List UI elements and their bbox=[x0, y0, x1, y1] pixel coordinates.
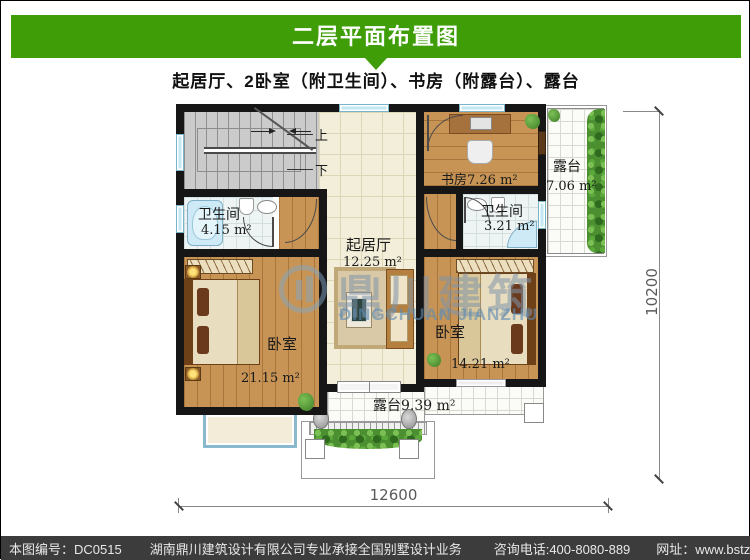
sink-left bbox=[257, 200, 277, 214]
window-left-bath bbox=[176, 205, 184, 233]
watermark-en-text: DINGCHUAN JIANZHU bbox=[339, 305, 538, 325]
bedroom-right-area: 14.21 m² bbox=[451, 357, 510, 372]
desk-chair bbox=[467, 140, 493, 164]
door-leaf-study bbox=[427, 115, 429, 151]
window-right-bath bbox=[538, 201, 546, 229]
watermark-logo-bar-2 bbox=[306, 276, 313, 302]
footer-company: 湖南鼎川建筑设计有限公司专业承接全国别墅设计业务 bbox=[150, 539, 462, 558]
lamp-left-bottom bbox=[187, 368, 199, 380]
bedroom-left-plant bbox=[298, 393, 314, 411]
stair-down-label: 下 bbox=[315, 160, 328, 179]
stair-arrow-left bbox=[251, 131, 271, 132]
dim-right-top-ext bbox=[623, 111, 660, 112]
footer-website: 网址：www.bstzcs.com bbox=[656, 539, 750, 558]
terrace-right-area: 7.06 m² bbox=[546, 179, 597, 194]
door-leaf-bath-left bbox=[272, 217, 274, 247]
wall-bath-right-bottom bbox=[416, 249, 546, 257]
bay-window bbox=[203, 412, 297, 448]
bed-right-pillow-2 bbox=[511, 324, 523, 354]
bed-left-headboard bbox=[185, 280, 193, 364]
bed-left-pillow-1 bbox=[197, 288, 209, 316]
bed-left-pillow-2 bbox=[197, 326, 209, 354]
floor-plan: 上 下 bbox=[1, 1, 750, 536]
terrace-bottom-label: 露台9.39 m² bbox=[373, 395, 456, 415]
footer-bar: 本图编号：DC0515 湖南鼎川建筑设计有限公司专业承接全国别墅设计业务 咨询电… bbox=[1, 536, 750, 560]
terrace-right-plant-corner bbox=[548, 109, 560, 122]
bath-left-area: 4.15 m² bbox=[201, 223, 252, 238]
bedroom-left-area: 21.15 m² bbox=[241, 371, 300, 386]
footer-drawing-no: 本图编号：DC0515 bbox=[9, 539, 122, 558]
bedroom-left-name: 卧室 bbox=[267, 333, 297, 354]
stair-down-leader bbox=[287, 169, 313, 170]
door-study-terrace bbox=[538, 131, 546, 155]
terrace-right-name: 露台 bbox=[553, 156, 581, 176]
stair-up-label: 上 bbox=[315, 125, 328, 144]
window-bedroom-right-bottom bbox=[456, 379, 506, 387]
bath-right-area: 3.21 m² bbox=[484, 219, 535, 234]
bath-right-name: 卫生间 bbox=[481, 201, 523, 221]
bath-left-name: 卫生间 bbox=[198, 204, 240, 224]
wall-bath-right-left bbox=[456, 194, 463, 257]
stair-up-leader bbox=[287, 134, 313, 135]
dim-height-value: 10200 bbox=[643, 260, 659, 324]
toilet-left bbox=[239, 198, 254, 215]
watermark: 鼎川建筑 DINGCHUAN JIANZHU bbox=[271, 261, 501, 323]
watermark-logo-icon bbox=[279, 265, 327, 313]
window-top-study bbox=[459, 104, 505, 112]
french-door-divider bbox=[369, 382, 370, 392]
window-left-stair bbox=[176, 134, 184, 171]
balcony-pillar-left bbox=[305, 439, 325, 459]
living-room-name: 起居厅 bbox=[346, 234, 391, 255]
stair-handrail bbox=[204, 147, 316, 154]
dim-width-value: 12600 bbox=[178, 486, 609, 504]
window-top-living bbox=[339, 104, 389, 112]
study-label: 书房7.26 m² bbox=[441, 169, 518, 188]
french-door-living bbox=[337, 381, 401, 393]
footer-phone: 咨询电话:400-8080-889 bbox=[494, 539, 631, 558]
balcony-pillar-right bbox=[399, 439, 419, 459]
bedroom-right-plant bbox=[427, 353, 441, 367]
monitor bbox=[470, 117, 492, 130]
bed-left bbox=[184, 279, 260, 365]
lamp-left-top bbox=[187, 266, 199, 278]
bed-left-blanket bbox=[237, 280, 259, 364]
wall-bath-left-bottom bbox=[176, 249, 327, 257]
stair-arrow-left-head bbox=[269, 128, 279, 134]
dim-bottom-line bbox=[178, 506, 609, 507]
door-leaf-bath-right bbox=[464, 197, 466, 223]
watermark-logo-bar-1 bbox=[296, 280, 302, 300]
study-plant bbox=[525, 114, 540, 129]
terrace-pillar-right bbox=[524, 403, 544, 423]
wall-stair-bottom bbox=[176, 189, 327, 197]
